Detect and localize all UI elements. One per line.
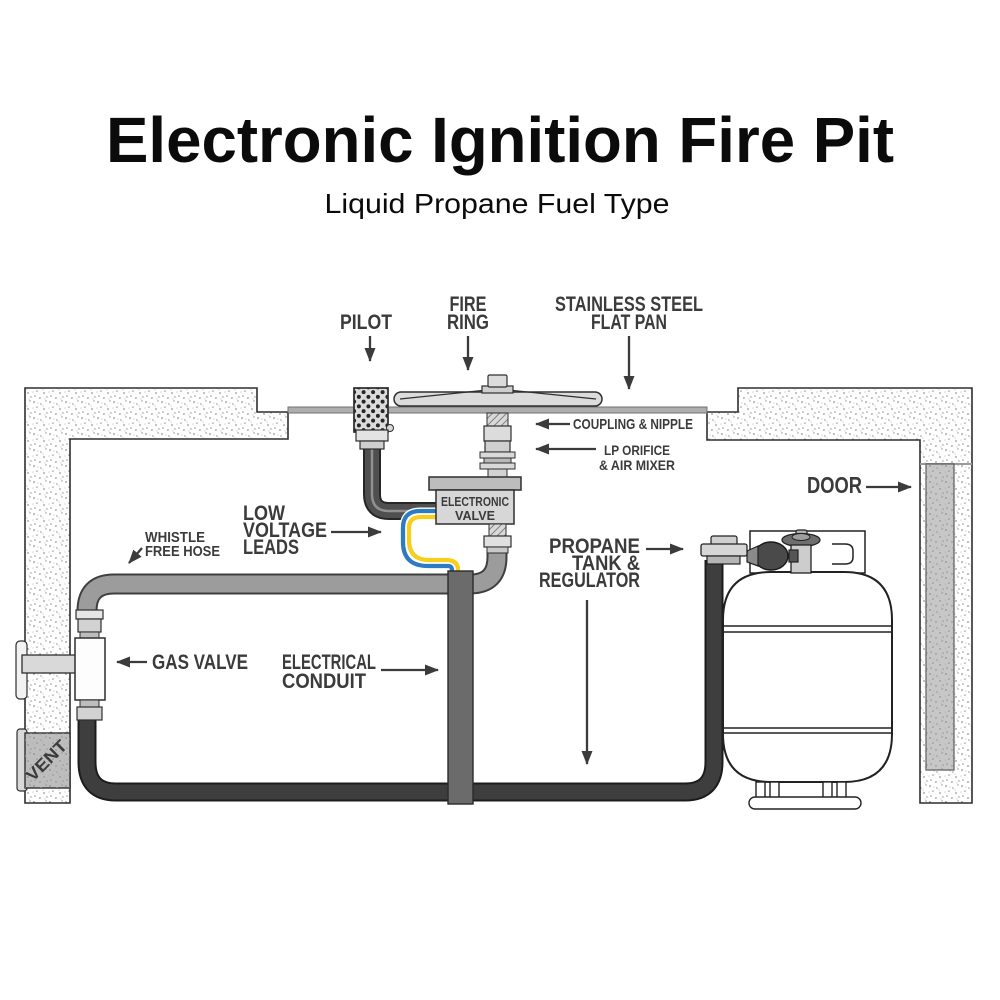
diagram-canvas: Electronic Ignition Fire Pit Liquid Prop… <box>0 0 1000 1000</box>
fire-ring <box>394 375 602 406</box>
coupling-nipple-orifice-stack <box>480 413 515 478</box>
whistle-hose-arrow <box>129 548 142 563</box>
fire-pit-diagram-page: Electronic Ignition Fire Pit Liquid Prop… <box>0 0 1000 1000</box>
page-header: Electronic Ignition Fire Pit Liquid Prop… <box>106 104 894 219</box>
gas-valve-body <box>75 638 105 700</box>
tank-body <box>723 572 892 782</box>
electrical-conduit <box>448 571 473 804</box>
label-electronic-valve-line2: VALVE <box>455 509 495 523</box>
lp-orifice-air-mixer <box>480 452 515 469</box>
gas-valve-key-handle <box>22 655 78 673</box>
label-low-voltage-line3: LEADS <box>243 536 299 559</box>
label-fire-ring-line2: RING <box>447 311 489 334</box>
page-subtitle: Liquid Propane Fuel Type <box>325 188 670 219</box>
label-lp-orifice-line1: LP ORIFICE <box>604 442 670 458</box>
label-conduit-line2: CONDUIT <box>282 670 366 693</box>
label-coupling-nipple: COUPLING & NIPPLE <box>573 416 693 433</box>
stainless-steel-flat-pan <box>288 407 707 413</box>
coupling <box>484 426 511 441</box>
black-gas-hose <box>87 560 714 792</box>
propane-tank <box>701 530 892 809</box>
tank-foot-ring <box>749 782 861 809</box>
fire-ring-hub-cap <box>488 375 507 387</box>
label-door: DOOR <box>807 472 862 498</box>
label-lp-orifice-line2: & AIR MIXER <box>599 457 675 473</box>
access-door <box>926 464 954 770</box>
pilot-supply-tube <box>372 442 437 511</box>
pilot-assembly <box>354 388 394 449</box>
label-flat-pan-line2: FLAT PAN <box>591 311 667 334</box>
label-electronic-valve-line1: ELECTRONIC <box>441 495 509 509</box>
valve-header <box>429 477 521 490</box>
label-gas-valve: GAS VALVE <box>152 651 248 674</box>
label-propane-line3: REGULATOR <box>539 569 640 592</box>
label-whistle-hose-line2: FREE HOSE <box>145 543 220 560</box>
label-pilot: PILOT <box>340 311 392 334</box>
page-title: Electronic Ignition Fire Pit <box>106 104 894 176</box>
